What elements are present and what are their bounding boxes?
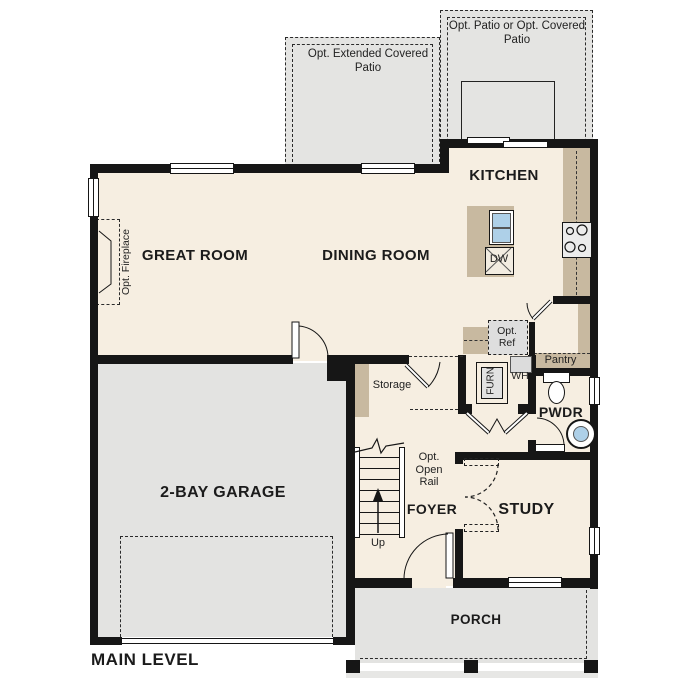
- island-sink-basin-bottom: [492, 228, 511, 243]
- window-study-right: [589, 527, 600, 555]
- storage-label: Storage: [366, 379, 418, 392]
- room-label-kitchen: KITCHEN: [444, 166, 564, 185]
- island-sink-basin-top: [492, 213, 511, 228]
- stairs-up-label: Up: [364, 537, 392, 550]
- wall-study-left-a: [455, 452, 463, 464]
- wall-study-left-b: [455, 529, 463, 588]
- wall-garage-bottom-a: [90, 637, 122, 645]
- pantry-shelf-right: [578, 303, 590, 354]
- room-label-porch: PORCH: [416, 610, 536, 629]
- pantry-label: Pantry: [533, 354, 588, 367]
- study-french-door-leaf-bottom: [464, 524, 499, 532]
- opening-dining-foyer: [409, 356, 463, 357]
- furnace-label: FURN: [486, 360, 498, 401]
- garage-door: [122, 638, 333, 644]
- window-great-room-top: [170, 163, 234, 174]
- front-door-opening: [412, 578, 446, 588]
- stair-treads: [359, 447, 399, 536]
- room-label-dining-room: DINING ROOM: [312, 246, 440, 265]
- window-powder-right: [589, 377, 600, 405]
- wall-pantry-top: [553, 296, 590, 304]
- wall-garage-bottom-b: [333, 637, 355, 645]
- study-french-door-leaf-top: [464, 458, 499, 466]
- wall-pantry-left: [529, 322, 535, 356]
- room-label-foyer: FOYER: [404, 500, 460, 519]
- room-label-garage: 2-BAY GARAGE: [152, 483, 294, 502]
- garage-door-approach-outline: [120, 536, 333, 637]
- powder-door-leaf: [535, 444, 565, 452]
- water-heater-label: WH: [504, 370, 536, 382]
- wall-garage-top-a: [90, 355, 293, 364]
- opt-open-rail-label: Opt. Open Rail: [407, 451, 451, 489]
- porch-post-left: [346, 660, 360, 673]
- room-label-powder: PWDR: [530, 403, 592, 422]
- opt-fireplace-label: Opt. Fireplace: [120, 217, 134, 307]
- pedestal-sink-basin: [573, 426, 589, 442]
- wall-furn-bottom-left: [458, 404, 472, 414]
- plan-title: MAIN LEVEL: [91, 650, 271, 670]
- stair-rail-right: [399, 447, 405, 538]
- opt-ref-label: Opt. Ref: [489, 325, 525, 350]
- porch-post-right: [584, 660, 598, 673]
- wall-garage-left: [90, 364, 98, 645]
- window-dining-top: [361, 163, 415, 174]
- study-floor: [458, 456, 596, 586]
- opt-patio-label: Opt. Patio or Opt. Covered Patio: [448, 20, 586, 47]
- patio-stoop: [461, 81, 555, 143]
- room-label-great-room: GREAT ROOM: [130, 246, 260, 265]
- range: [562, 222, 592, 258]
- counter-by-ref-line: [464, 340, 488, 341]
- extended-patio-label: Opt. Extended Covered Patio: [302, 48, 434, 75]
- toilet-bowl: [548, 381, 565, 404]
- dishwasher-label: DW: [485, 253, 513, 266]
- porch-post-middle: [464, 660, 478, 673]
- room-label-study: STUDY: [464, 500, 589, 519]
- wall-storage-top: [346, 355, 409, 364]
- window-great-room-left: [88, 178, 99, 217]
- opening-foyer-hall: [410, 409, 458, 410]
- wall-right: [590, 139, 598, 589]
- wall-front-a: [346, 578, 412, 588]
- sliding-door-panel-right: [503, 141, 548, 148]
- opt-fireplace-outline: [96, 219, 120, 305]
- floor-plan: Opt. Extended Covered Patio Opt. Patio o…: [0, 0, 687, 687]
- stair-rail-left: [354, 447, 360, 538]
- window-study-bottom: [508, 577, 562, 588]
